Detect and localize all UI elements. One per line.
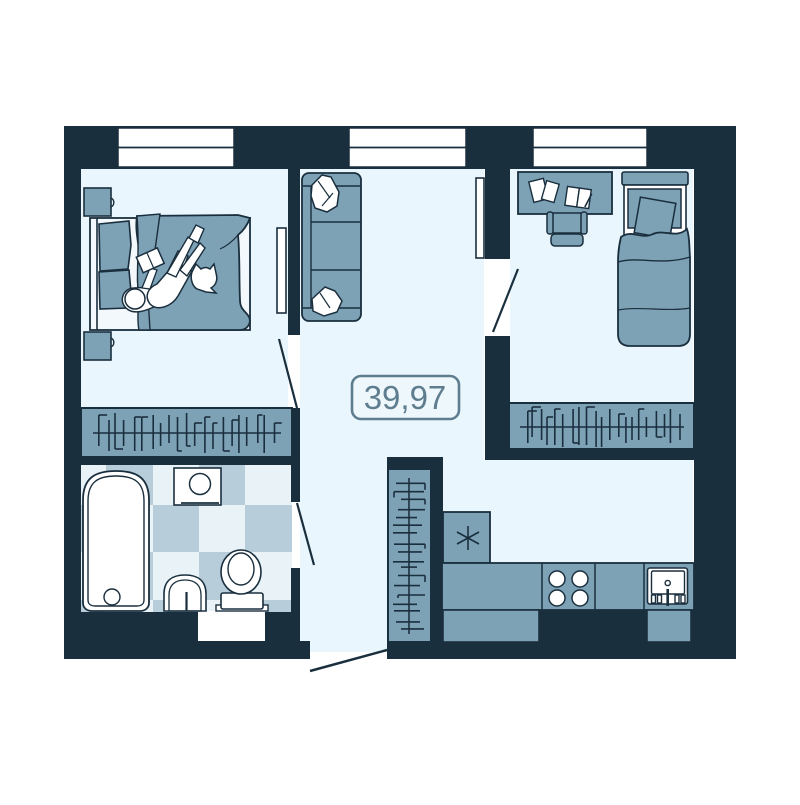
svg-text:39,97: 39,97 — [364, 379, 447, 416]
